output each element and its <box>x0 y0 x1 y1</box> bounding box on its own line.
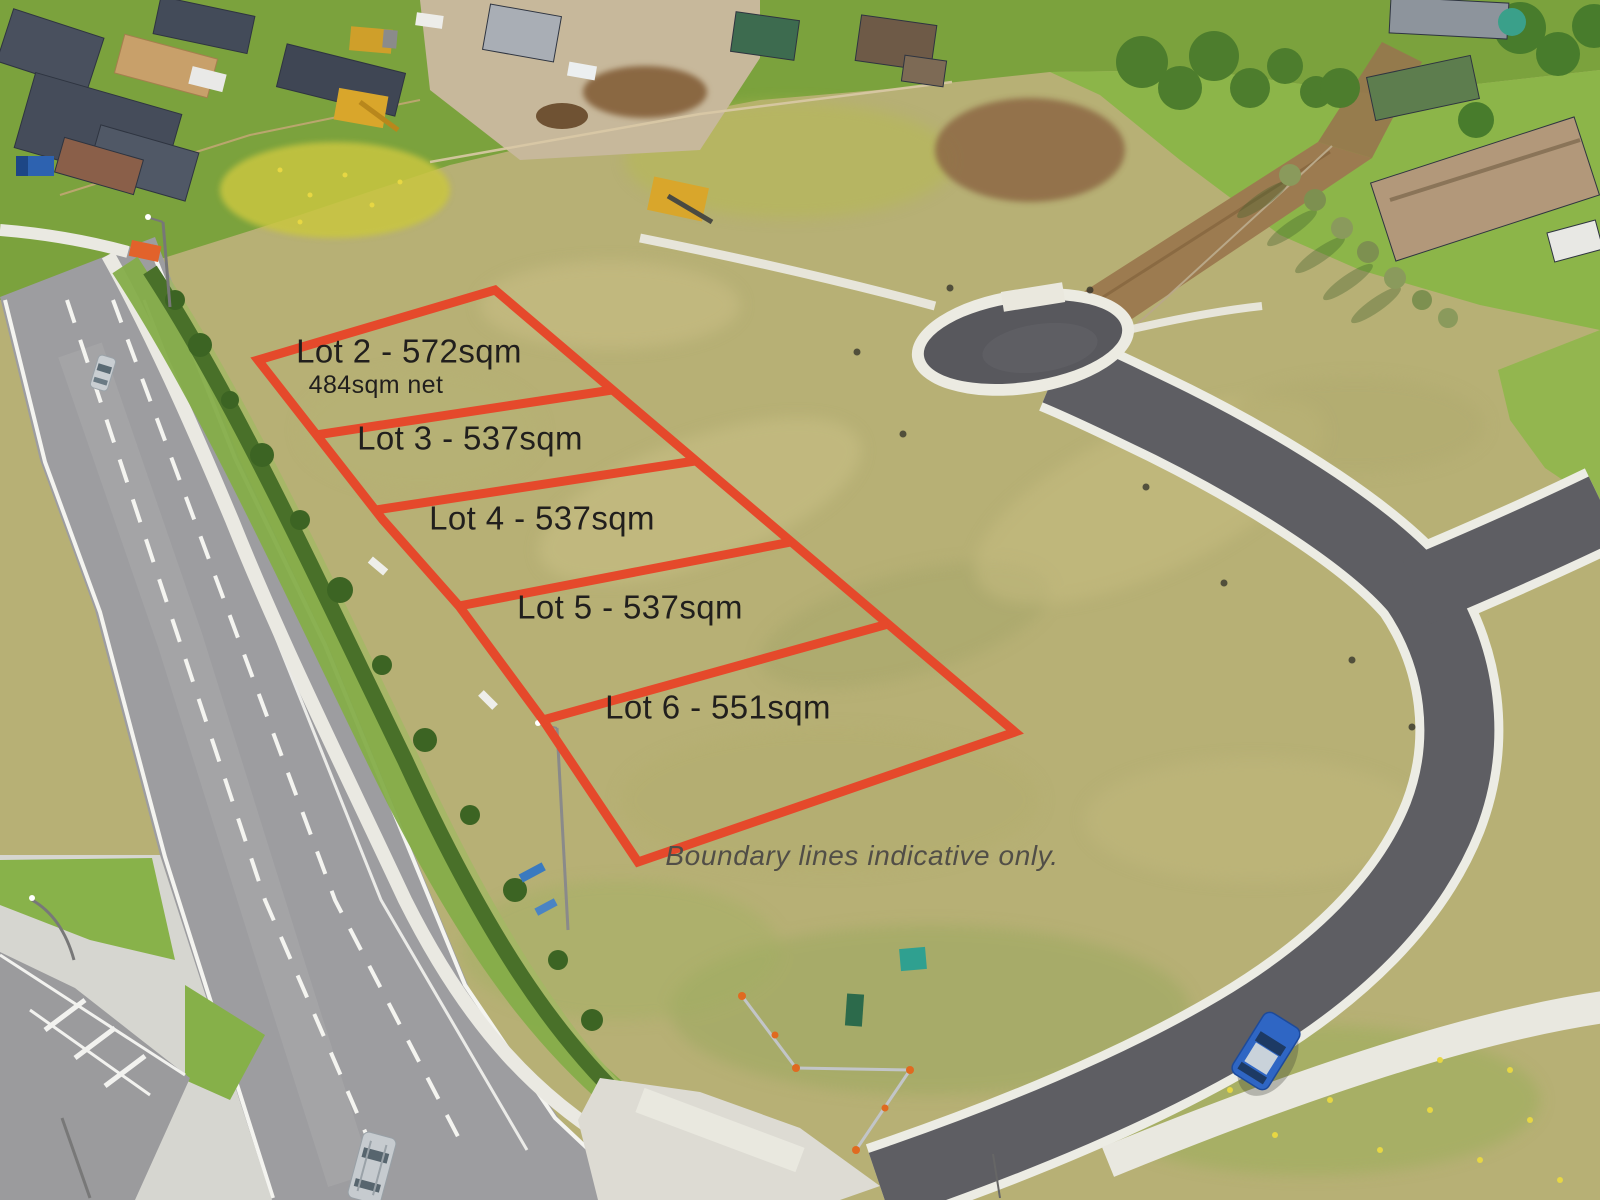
lot-5-label: Lot 5 - 537sqm <box>517 591 743 626</box>
lot-3-label: Lot 3 - 537sqm <box>357 422 583 457</box>
lot-2-net-area-label: 484sqm net <box>309 372 444 398</box>
lot-4-label: Lot 4 - 537sqm <box>429 502 655 537</box>
lot-2-label: Lot 2 - 572sqm <box>296 335 522 370</box>
boundary-disclaimer: Boundary lines indicative only. <box>665 842 1058 870</box>
lot-6-label: Lot 6 - 551sqm <box>605 691 831 726</box>
lot-labels-layer: Lot 2 - 572sqm484sqm netLot 3 - 537sqmLo… <box>0 0 1600 1200</box>
aerial-photo-stage: Lot 2 - 572sqm484sqm netLot 3 - 537sqmLo… <box>0 0 1600 1200</box>
